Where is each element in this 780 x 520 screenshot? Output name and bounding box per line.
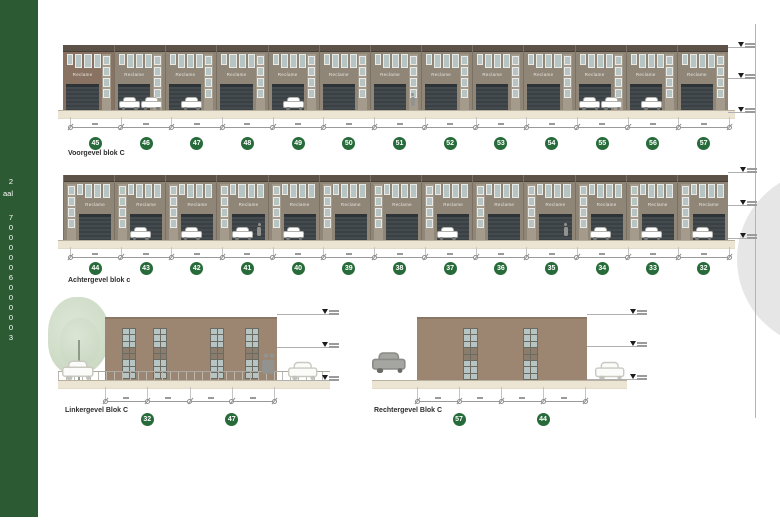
car-icon <box>692 226 714 240</box>
elevation-achtergevel: Achtergevel blok c ReclameReclameReclame… <box>0 0 780 520</box>
window-row <box>528 54 561 68</box>
garage-door <box>374 84 406 110</box>
window-pane <box>77 184 83 195</box>
person-icon <box>262 360 268 374</box>
spandrel-panel <box>130 348 136 353</box>
dimension-text <box>143 123 149 125</box>
reclame-sign: Reclame <box>473 72 511 79</box>
glass-pane <box>154 373 160 378</box>
dimension-text <box>435 397 441 399</box>
dimension-node <box>169 255 174 260</box>
reclame-sign: Reclame <box>536 202 574 209</box>
unit-51: Reclame <box>370 45 421 110</box>
dimension-text <box>244 123 250 125</box>
window-pane <box>341 54 348 68</box>
window-pane <box>597 54 604 68</box>
glass-pane <box>130 360 136 365</box>
strip-pane <box>273 208 280 217</box>
dimension-leader <box>222 117 223 127</box>
glass-pane <box>531 329 537 334</box>
strip-pane <box>170 186 177 195</box>
dimension-node <box>541 399 546 404</box>
elevation-label-achtergevel: Achtergevel blok c <box>68 277 130 284</box>
glass-pane <box>464 329 470 334</box>
car-wheel <box>604 107 608 111</box>
window-pane <box>94 54 101 68</box>
glass-pane <box>524 342 530 347</box>
level-marker-icon <box>322 342 328 347</box>
reclame-sign: Reclame <box>332 202 370 209</box>
dimension-node <box>727 125 732 130</box>
elevation-label-rechtergevel: Rechtergevel Blok C <box>374 407 442 414</box>
stair-window-strip <box>358 54 367 110</box>
car-body <box>283 231 304 238</box>
window-pane <box>248 54 255 68</box>
window-pane <box>435 184 441 195</box>
unit-32: Reclame <box>677 175 728 240</box>
unit-52: Reclame <box>421 45 472 110</box>
window-pane <box>648 184 655 198</box>
window-pane <box>94 184 101 198</box>
garage-door <box>130 214 162 240</box>
car-roof <box>123 97 136 103</box>
window-pane <box>239 54 246 68</box>
parapet-band <box>115 175 165 182</box>
window-pane <box>290 54 297 68</box>
watermark-circle <box>737 170 780 348</box>
strip-pane <box>580 197 587 206</box>
sidebar-text-fragment: aal <box>0 190 13 198</box>
sidebar-text-fragment: 0 <box>0 314 13 322</box>
dimension-text <box>397 123 403 125</box>
glass-pane <box>464 361 470 366</box>
level-marker-text <box>329 313 339 315</box>
strip-pane <box>426 186 433 195</box>
reclame-sign: Reclame <box>217 72 255 79</box>
glass-pane <box>471 367 477 372</box>
unit-number-badge: 35 <box>545 262 558 275</box>
spandrel-panel <box>471 348 477 353</box>
dimension-text <box>549 123 555 125</box>
dimension-leader <box>70 247 71 257</box>
dimension-text <box>519 397 525 399</box>
level-marker-text <box>637 342 647 344</box>
stair-window-strip <box>563 54 572 110</box>
car-icon <box>232 226 254 240</box>
car-body <box>372 359 406 370</box>
strip-pane <box>682 219 689 228</box>
dimension-leader <box>121 117 122 127</box>
reclame-sign: Reclame <box>588 202 626 209</box>
level-marker-text <box>329 343 339 345</box>
window-pane <box>187 54 194 68</box>
glass-pane <box>246 335 252 340</box>
window-row <box>589 184 622 198</box>
sidebar-text-fragment: 0 <box>0 224 13 232</box>
car-wheel <box>133 237 137 241</box>
level-marker-text <box>745 43 755 45</box>
window-row <box>580 54 613 68</box>
parapet-band <box>320 45 370 52</box>
window-strip <box>523 328 538 380</box>
strip-pane <box>512 89 519 98</box>
sidebar-text-fragment: 6 <box>0 274 13 282</box>
sidebar-text-fragment: 0 <box>0 284 13 292</box>
window-strip <box>210 328 224 379</box>
strip-pane <box>615 56 622 65</box>
window-pane <box>273 54 279 65</box>
window-pane <box>205 184 212 198</box>
window-row <box>77 184 110 198</box>
strip-pane <box>631 197 638 206</box>
reclame-sign: Reclame <box>485 202 523 209</box>
strip-pane <box>564 78 571 87</box>
car-wheel <box>144 107 148 111</box>
garage-door <box>118 84 150 110</box>
car-wheel <box>85 375 90 380</box>
unit-34: Reclame <box>575 175 626 240</box>
window-pane <box>383 54 390 68</box>
car-wheel <box>299 107 303 111</box>
parapet-band <box>320 175 370 182</box>
level-marker-text <box>745 74 755 76</box>
tree-trunk <box>78 340 80 380</box>
dimension-text <box>447 253 453 255</box>
pavement <box>372 380 627 389</box>
window-pane <box>580 54 586 65</box>
elevation-linkergevel: Linkergevel Blok C 3247 <box>0 0 780 520</box>
strip-pane <box>308 89 315 98</box>
car-icon <box>141 96 163 110</box>
glass-pane <box>531 374 537 379</box>
car-icon <box>595 360 626 380</box>
strip-pane <box>615 67 622 76</box>
level-leader-line <box>728 205 756 206</box>
car-roof <box>294 362 312 370</box>
strip-pane <box>477 186 484 195</box>
dimension-text <box>561 397 567 399</box>
dimension-text <box>346 123 352 125</box>
window-pane <box>485 54 492 68</box>
strip-pane <box>68 208 75 217</box>
dimension-leader <box>526 117 527 127</box>
window-pane <box>588 54 595 68</box>
stair-window-strip <box>272 184 281 240</box>
glass-pane <box>218 360 224 365</box>
window-row <box>273 54 306 68</box>
window-pane <box>545 54 552 68</box>
dimension-text <box>346 253 352 255</box>
car-body <box>181 231 202 238</box>
strip-pane <box>615 78 622 87</box>
dimension-leader <box>585 387 586 401</box>
strip-pane <box>103 78 110 87</box>
dimension-text <box>92 123 98 125</box>
car-icon <box>62 359 95 380</box>
garage-door <box>79 214 111 240</box>
car-roof <box>645 97 658 103</box>
strip-pane <box>170 197 177 206</box>
unit-37: Reclame <box>421 175 472 240</box>
car-wheel <box>397 367 403 373</box>
dimension-leader <box>577 117 578 127</box>
car-roof <box>601 362 619 370</box>
car-wheel <box>599 375 604 380</box>
strip-pane <box>666 67 673 76</box>
window-row <box>537 184 570 198</box>
strip-pane <box>426 208 433 217</box>
window-row <box>631 54 664 68</box>
strip-pane <box>564 56 571 65</box>
strip-pane <box>119 208 126 217</box>
car-icon <box>372 351 407 373</box>
window-pane <box>392 54 399 68</box>
parapet-band <box>269 175 319 182</box>
dimension-leader <box>323 117 324 127</box>
spandrel-panel <box>161 354 167 359</box>
glass-pane <box>524 367 530 372</box>
garage-door <box>642 214 674 240</box>
window-pane <box>494 184 501 198</box>
dimension-node <box>473 125 478 130</box>
level-leader-line <box>587 379 646 380</box>
strip-pane <box>68 219 75 228</box>
window-pane <box>119 54 125 65</box>
window-pane <box>528 54 534 65</box>
unit-number-badge: 55 <box>596 137 609 150</box>
glass-pane <box>130 342 136 347</box>
dimension-leader <box>459 387 460 401</box>
reclame-sign: Reclame <box>678 72 716 79</box>
stair-window-strip <box>716 54 725 110</box>
spandrel-panel <box>464 348 470 353</box>
stair-window-strip <box>204 54 213 110</box>
glass-pane <box>123 360 129 365</box>
unit-49: Reclame <box>268 45 319 110</box>
glass-pane <box>161 367 167 372</box>
strip-pane <box>580 208 587 217</box>
dimension-leader <box>729 247 730 257</box>
strip-pane <box>273 186 280 195</box>
car-roof <box>185 227 198 233</box>
dimension-node <box>457 399 462 404</box>
dimension-node <box>625 125 630 130</box>
window-pane <box>648 54 655 68</box>
dimension-leader <box>476 117 477 127</box>
window-pane <box>221 54 227 65</box>
garage-door <box>591 214 623 240</box>
window-row <box>375 54 408 68</box>
window-pane <box>281 54 288 68</box>
stair-window-strip <box>425 184 434 240</box>
window-pane <box>392 184 399 198</box>
window-pane <box>554 184 561 198</box>
window-pane <box>606 54 613 68</box>
window-pane <box>537 184 543 195</box>
car-roof <box>68 361 88 370</box>
elevation-label-linkergevel: Linkergevel Blok C <box>65 407 128 414</box>
strip-pane <box>375 186 382 195</box>
glass-pane <box>123 367 129 372</box>
dimension-leader <box>678 247 679 257</box>
dimension-node <box>272 399 277 404</box>
spandrel-panel <box>130 354 136 359</box>
window-pane <box>333 184 339 195</box>
person-icon <box>257 227 261 236</box>
glass-pane <box>130 367 136 372</box>
stair-window-strip <box>511 54 520 110</box>
car-roof <box>594 227 607 233</box>
car-roof <box>185 97 198 103</box>
dimension-text <box>295 123 301 125</box>
unit-number-badge: 47 <box>190 137 203 150</box>
dimension-node <box>422 255 427 260</box>
strip-pane <box>273 219 280 228</box>
window-pane <box>606 184 613 198</box>
glass-pane <box>154 360 160 365</box>
unit-56: Reclame <box>626 45 677 110</box>
car-wheel <box>248 237 252 241</box>
garage-door <box>272 84 304 110</box>
dimension-node <box>145 399 150 404</box>
glass-pane <box>211 367 217 372</box>
car-roof <box>287 227 300 233</box>
dimension-text <box>295 253 301 255</box>
dimension-leader <box>526 247 527 257</box>
dimension-node <box>169 125 174 130</box>
car-wheel <box>452 237 456 241</box>
level-marker-text <box>329 346 339 348</box>
sidebar-text-fragment: 0 <box>0 294 13 302</box>
reclame-sign: Reclame <box>320 72 358 79</box>
dimension-text <box>498 253 504 255</box>
stair-window-strip <box>579 184 588 240</box>
window-row <box>170 54 203 68</box>
stair-window-strip <box>118 184 127 240</box>
car-wheel <box>593 237 597 241</box>
glass-pane <box>253 367 259 372</box>
parapet-band <box>576 175 626 182</box>
window-row <box>486 184 519 198</box>
spandrel-panel <box>123 354 129 359</box>
window-pane <box>179 184 185 195</box>
reclame-sign: Reclame <box>690 202 728 209</box>
strip-pane <box>528 208 535 217</box>
level-marker-icon <box>738 42 744 47</box>
dimension-node <box>229 399 234 404</box>
window-pane <box>494 54 501 68</box>
window-pane <box>426 54 432 65</box>
glass-pane <box>524 374 530 379</box>
dimension-node <box>499 399 504 404</box>
car-body <box>130 231 151 238</box>
unit-number-badge: 44 <box>537 413 550 426</box>
dimension-node <box>676 125 681 130</box>
dimension-text <box>143 253 149 255</box>
unit-53: Reclame <box>472 45 523 110</box>
level-marker-icon <box>322 375 328 380</box>
window-pane <box>248 184 255 198</box>
unit-number-badge: 53 <box>494 137 507 150</box>
car-wheel <box>196 107 200 111</box>
glass-pane <box>211 335 217 340</box>
strip-pane <box>528 219 535 228</box>
dimension-line <box>68 257 731 258</box>
dimension-node <box>727 255 732 260</box>
window-pane <box>350 184 357 198</box>
dimension-leader <box>274 387 275 401</box>
dimension-leader <box>425 117 426 127</box>
dimension-leader <box>105 387 106 401</box>
unit-number-badge: 57 <box>697 137 710 150</box>
dimension-text <box>447 123 453 125</box>
garage-door <box>630 84 662 110</box>
dimension-node <box>68 255 73 260</box>
stair-window-strip <box>169 184 178 240</box>
dimension-line <box>415 401 587 402</box>
parapet-band <box>678 45 728 52</box>
dimension-leader <box>273 247 274 257</box>
car-body <box>181 101 202 108</box>
garage-door <box>437 214 469 240</box>
window-pane <box>639 54 646 68</box>
glass-pane <box>218 335 224 340</box>
strip-pane <box>512 56 519 65</box>
level-marker-text <box>637 378 647 380</box>
stair-window-strip <box>476 184 485 240</box>
spandrel-panel <box>471 355 477 360</box>
parapet-band <box>422 45 472 52</box>
tree-icon <box>48 297 110 375</box>
strip-pane <box>103 89 110 98</box>
window-strip <box>245 328 259 379</box>
window-pane <box>486 184 492 195</box>
window-pane <box>257 184 264 198</box>
strip-pane <box>375 219 382 228</box>
glass-pane <box>253 329 259 334</box>
unit-46: Reclame <box>114 45 165 110</box>
window-pane <box>178 54 185 68</box>
strip-pane <box>631 219 638 228</box>
dimension-text <box>650 253 656 255</box>
level-leader-line <box>587 346 646 347</box>
strip-pane <box>426 197 433 206</box>
window-strip <box>122 328 136 379</box>
car-wheel <box>184 107 188 111</box>
unit-number-badge: 34 <box>596 262 609 275</box>
car-wheel <box>644 107 648 111</box>
side-facade <box>417 317 587 382</box>
window-pane <box>443 54 450 68</box>
dimension-node <box>103 399 108 404</box>
window-pane <box>699 54 706 68</box>
car-roof <box>287 97 300 103</box>
strip-pane <box>666 89 673 98</box>
glass-pane <box>531 361 537 366</box>
level-leader-line <box>728 78 754 79</box>
window-pane <box>229 54 236 68</box>
level-marker-icon <box>322 309 328 314</box>
strip-pane <box>631 186 638 195</box>
window-pane <box>657 184 664 198</box>
level-marker-text <box>329 379 339 381</box>
car-wheel <box>286 237 290 241</box>
glass-pane <box>464 335 470 340</box>
strip-pane <box>461 78 468 87</box>
window-pane <box>136 54 143 68</box>
dimension-leader <box>273 117 274 127</box>
window-pane <box>375 54 381 65</box>
